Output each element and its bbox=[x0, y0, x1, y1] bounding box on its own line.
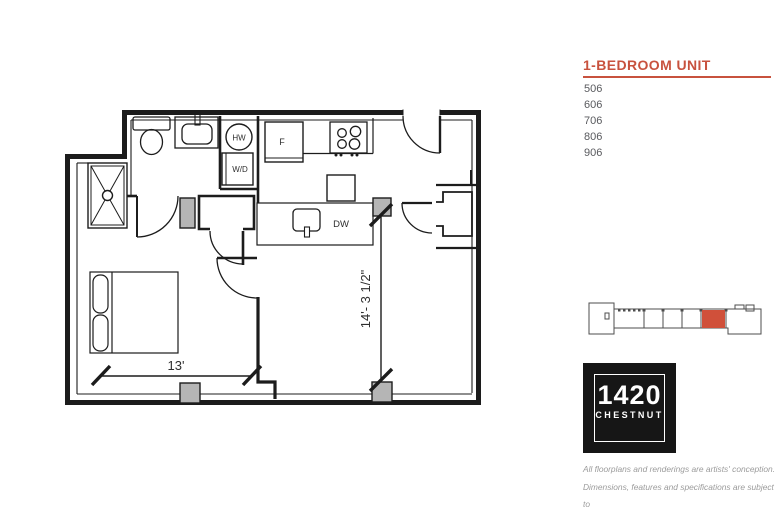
bed bbox=[90, 272, 178, 353]
footprint-outline bbox=[614, 309, 761, 334]
brochure-page: HW W/D F bbox=[0, 0, 780, 517]
highlighted-unit bbox=[702, 310, 725, 328]
entry-door-swing bbox=[403, 116, 440, 153]
width-dimension-label: 13' bbox=[168, 358, 185, 373]
dimension-width: 13' bbox=[92, 358, 261, 385]
logo-name: CHESTNUT bbox=[583, 410, 676, 420]
unit-number: 706 bbox=[584, 113, 602, 129]
disclaimer-line: Dimensions, features and specifications … bbox=[583, 479, 780, 514]
building-footprint bbox=[585, 297, 771, 341]
bathroom-door-swing bbox=[137, 196, 178, 237]
disclaimer-text: All floorplans and renderings are artist… bbox=[583, 461, 780, 517]
washer-dryer: W/D bbox=[222, 153, 253, 185]
hw-label: HW bbox=[232, 134, 246, 143]
dimension-height: 14'- 3 1/2" bbox=[358, 204, 392, 391]
pillow bbox=[93, 315, 108, 351]
logo-number: 1420 bbox=[583, 380, 676, 411]
sink-faucet bbox=[305, 227, 310, 237]
outer-walls bbox=[65, 108, 481, 406]
shower-stall bbox=[88, 163, 127, 228]
pillow bbox=[93, 275, 108, 313]
shower-drain bbox=[103, 191, 113, 201]
floorplan-drawing: HW W/D F bbox=[60, 105, 490, 415]
refrigerator: F bbox=[265, 122, 303, 162]
hot-water-heater: HW bbox=[226, 124, 252, 150]
unit-number: 506 bbox=[584, 81, 602, 97]
bathroom-sink bbox=[175, 114, 218, 148]
unit-number: 806 bbox=[584, 129, 602, 145]
stove bbox=[303, 118, 373, 157]
disclaimer-line: change at the discretion of the builder. bbox=[583, 514, 780, 517]
dw-label: DW bbox=[333, 219, 349, 230]
fridge-label: F bbox=[279, 137, 285, 147]
logo-1420-chestnut: 1420 CHESTNUT bbox=[583, 363, 676, 453]
wd-label: W/D bbox=[232, 165, 248, 174]
hall-closet-door-swing bbox=[402, 203, 432, 233]
height-dimension-label: 14'- 3 1/2" bbox=[358, 269, 373, 328]
unit-number-list: 506 606 706 806 906 bbox=[584, 81, 602, 161]
pantry-cabinet bbox=[327, 175, 355, 201]
title-underline bbox=[583, 76, 771, 78]
unit-number: 906 bbox=[584, 145, 602, 161]
kitchen-counter: DW bbox=[257, 203, 373, 245]
unit-number: 606 bbox=[584, 97, 602, 113]
toilet bbox=[133, 117, 170, 155]
page-title: 1-BEDROOM UNIT bbox=[583, 57, 711, 73]
entry-opening bbox=[403, 108, 440, 118]
disclaimer-line: All floorplans and renderings are artist… bbox=[583, 461, 780, 479]
footprint-left-block bbox=[589, 303, 614, 334]
